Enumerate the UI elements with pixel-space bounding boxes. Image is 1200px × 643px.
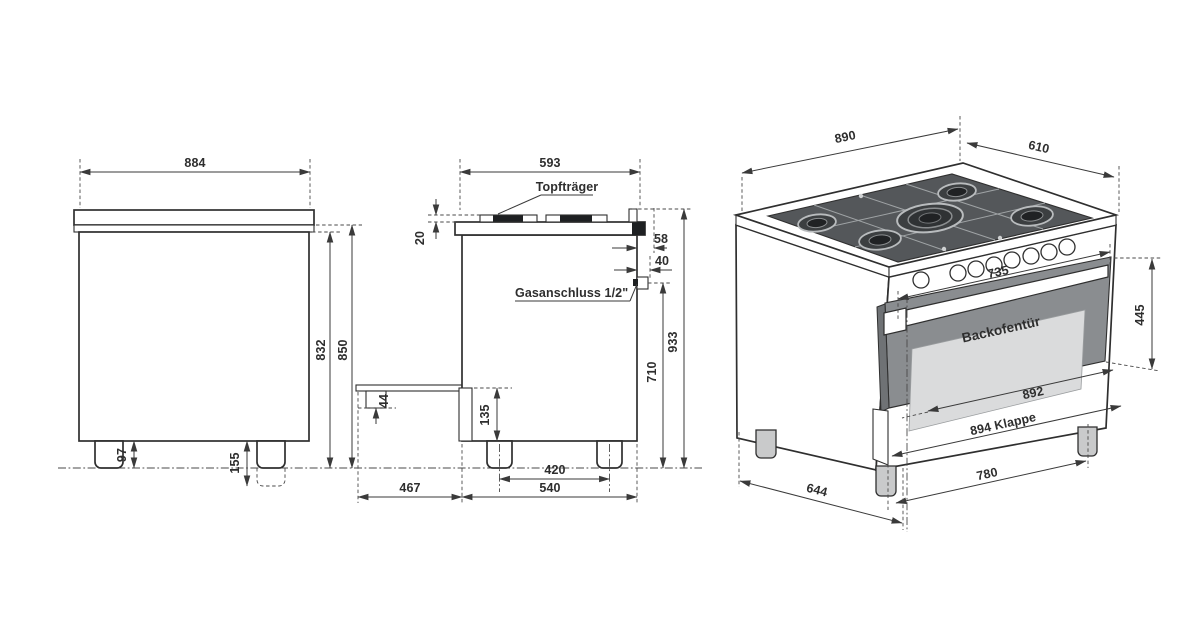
perspective-view: Backofentür 890 610 735 445 892: [736, 116, 1162, 532]
technical-drawing-page: 884 832 850 97 155: [0, 0, 1200, 643]
knob-7: [1041, 244, 1057, 260]
dim-97: 97: [115, 448, 129, 462]
flap-endcap: [873, 409, 888, 465]
dim-610: 610: [1027, 138, 1051, 156]
side-open-flap: [356, 385, 462, 391]
dim-644: 644: [805, 481, 829, 500]
dim-420: 420: [544, 463, 565, 477]
dim-850: 850: [336, 339, 350, 360]
dim-832: 832: [314, 339, 328, 360]
front-view: 884 832 850 97 155: [74, 156, 362, 486]
dim-40: 40: [655, 254, 669, 268]
persp-leg-side: [756, 430, 776, 458]
knob-8: [1059, 239, 1075, 255]
dim-467: 467: [399, 481, 420, 495]
persp-leg-front-right: [1078, 427, 1097, 456]
label-topftraeger: Topfträger: [536, 180, 599, 194]
oven-door-handle-endcap: [884, 308, 906, 335]
label-gasanschluss: Gasanschluss 1/2": [515, 286, 628, 300]
dim-20: 20: [413, 231, 427, 245]
dim-884: 884: [184, 156, 205, 170]
side-front-panel: [459, 388, 472, 441]
front-cooktop-strip: [74, 210, 314, 225]
side-view: 593 Topfträger 20 58 40 Gasanschluss 1/2…: [356, 156, 692, 503]
dim-445: 445: [1133, 304, 1147, 325]
knob-1: [913, 272, 929, 288]
side-back-upstand: [629, 209, 637, 222]
front-leg-extended-outline: [257, 468, 285, 486]
dim-933: 933: [666, 331, 680, 352]
dim-44: 44: [377, 394, 391, 408]
dim-710: 710: [645, 361, 659, 382]
range-cooker-dimension-drawing: 884 832 850 97 155: [0, 0, 1200, 643]
dim-135: 135: [478, 404, 492, 425]
gas-connection-fitting: [637, 277, 648, 289]
dim-890: 890: [833, 128, 857, 146]
dim-58: 58: [654, 232, 668, 246]
dim-780: 780: [975, 465, 999, 483]
side-cooktop-strip: [455, 222, 645, 235]
front-cooktop-trim: [74, 225, 314, 232]
side-cooktop-back-block: [632, 222, 645, 235]
knob-6: [1023, 248, 1039, 264]
dim-540: 540: [539, 481, 560, 495]
knob-2: [950, 265, 966, 281]
front-body: [79, 232, 309, 441]
persp-leg-front-left: [876, 466, 896, 496]
knob-3: [968, 261, 984, 277]
dim-155: 155: [228, 452, 242, 473]
dim-593: 593: [539, 156, 560, 170]
front-leg-right: [257, 441, 285, 468]
